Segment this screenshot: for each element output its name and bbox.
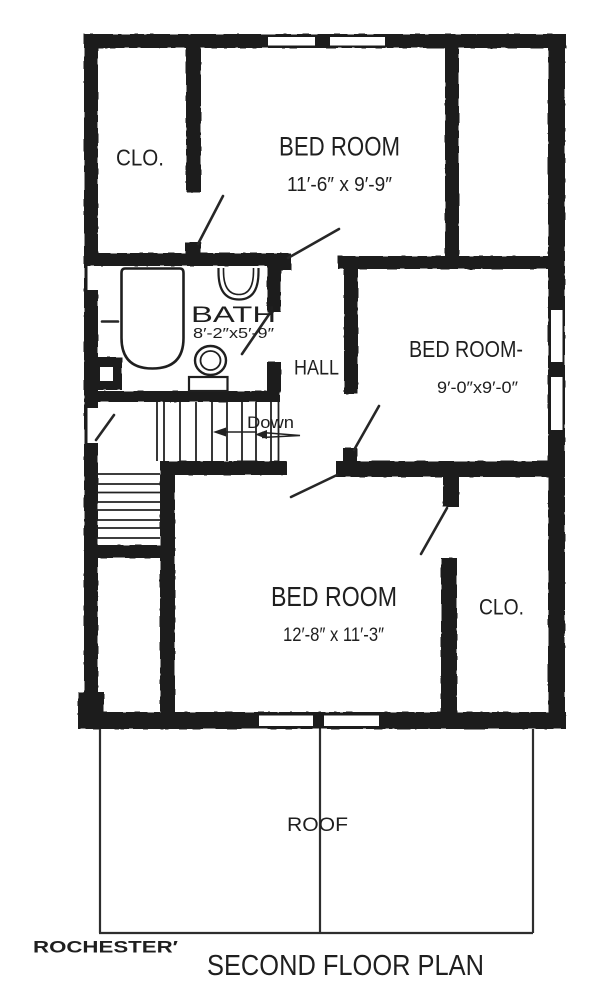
- svg-text:ROCHESTER′: ROCHESTER′: [33, 939, 178, 957]
- svg-text:Down: Down: [247, 413, 294, 432]
- svg-text:BATH: BATH: [191, 302, 276, 327]
- svg-text:BED ROOM: BED ROOM: [271, 581, 397, 612]
- svg-text:CLO.: CLO.: [479, 595, 524, 620]
- svg-text:9′-0″x9′-0″: 9′-0″x9′-0″: [437, 378, 518, 397]
- svg-text:SECOND FLOOR PLAN: SECOND FLOOR PLAN: [207, 950, 484, 982]
- svg-text:8′-2″x5′-9″: 8′-2″x5′-9″: [193, 326, 274, 342]
- svg-text:ROOF: ROOF: [287, 815, 348, 836]
- svg-text:HALL: HALL: [294, 356, 339, 380]
- svg-text:CLO.: CLO.: [116, 145, 164, 171]
- svg-text:BED ROOM-: BED ROOM-: [409, 336, 523, 362]
- svg-text:BED ROOM: BED ROOM: [279, 132, 400, 162]
- svg-text:11′-6″ x 9′-9″: 11′-6″ x 9′-9″: [287, 174, 392, 196]
- svg-text:12′-8″ x 11′-3″: 12′-8″ x 11′-3″: [283, 625, 384, 646]
